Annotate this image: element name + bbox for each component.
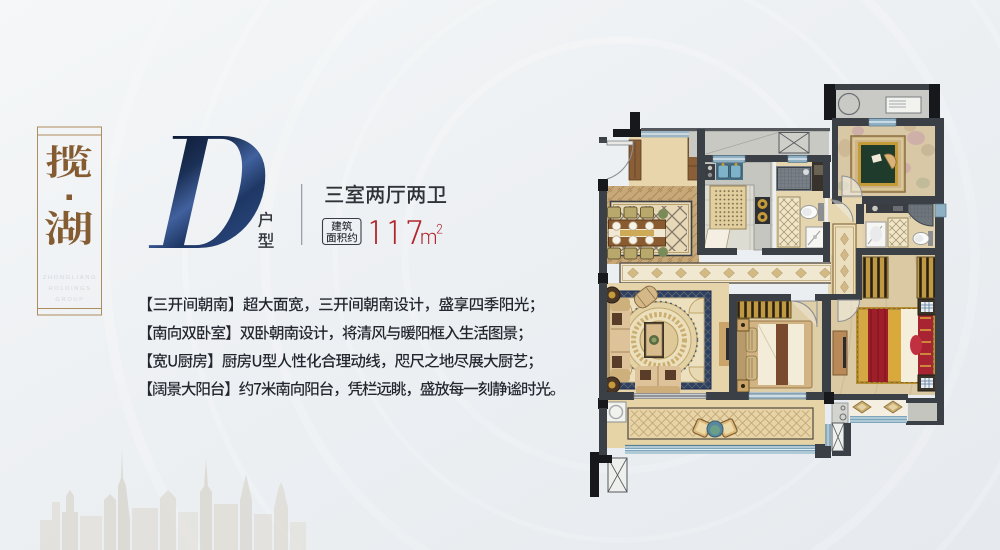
- svg-text:ZHONGLIANG: ZHONGLIANG: [43, 275, 97, 281]
- svg-text:GROUP: GROUP: [55, 297, 84, 303]
- svg-text:HOLDINGS: HOLDINGS: [48, 286, 91, 292]
